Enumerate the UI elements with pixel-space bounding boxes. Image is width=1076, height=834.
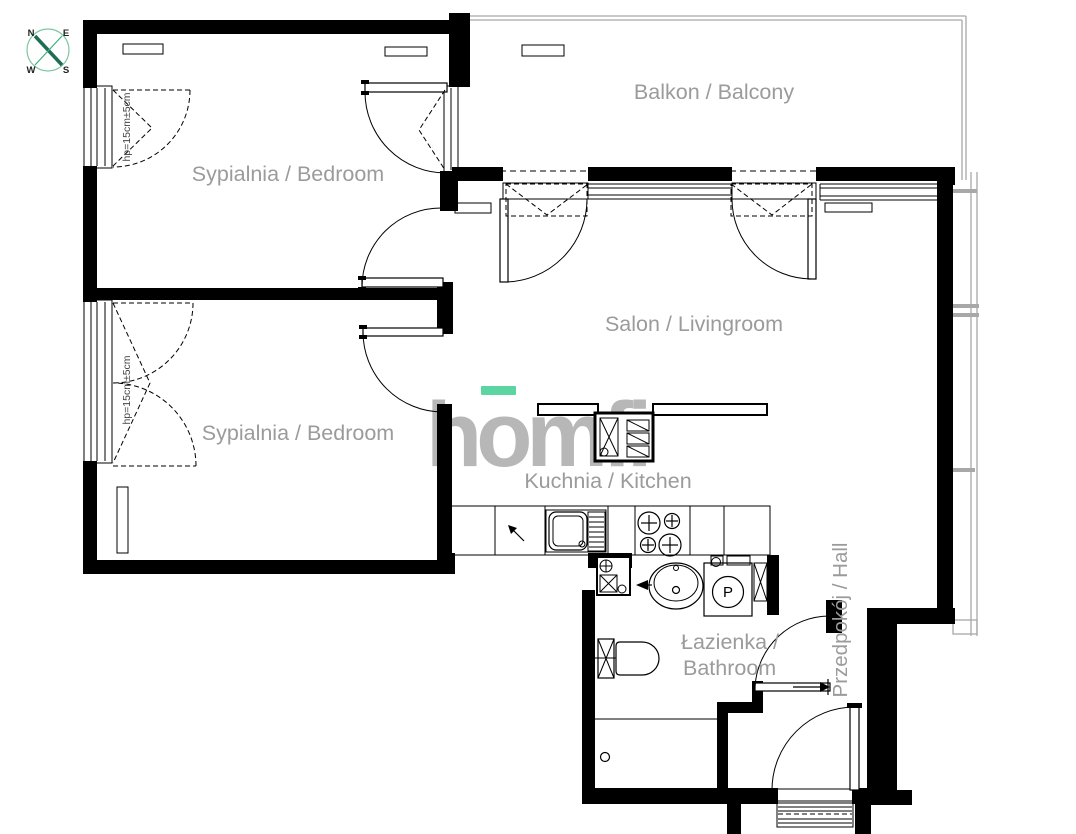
washing-machine-label: P xyxy=(723,584,733,601)
doormat xyxy=(777,803,853,827)
label-hall: Przedpokój / Hall xyxy=(829,543,852,698)
livingroom-balcony-door-1 xyxy=(500,183,588,282)
label-bedroom-1: Sypialnia / Bedroom xyxy=(192,162,384,186)
bedroom1-window: hp=15cm±5cm xyxy=(84,86,190,168)
washing-machine: P xyxy=(704,556,752,616)
compass-s: S xyxy=(63,65,69,76)
bedroom1-balcony-door xyxy=(361,80,458,173)
counter-arrow xyxy=(508,525,524,541)
livingroom-window-band-right xyxy=(820,184,937,200)
shower xyxy=(595,719,717,762)
bedroom1-door xyxy=(358,208,443,291)
label-livingroom: Salon / Livingroom xyxy=(605,312,783,336)
bathroom-shaft-box xyxy=(597,557,630,595)
livingroom-window-band xyxy=(588,184,732,199)
label-balcony: Balkon / Balcony xyxy=(634,80,794,104)
entrance-door xyxy=(772,703,862,827)
kitchen-sink xyxy=(546,510,606,552)
livingroom-balcony-door-2 xyxy=(731,183,816,279)
watermark-accent-bar xyxy=(481,386,516,395)
window-sill-annotation-1: hp=15cm±5cm xyxy=(121,92,133,161)
floor-plan-page: homfi xyxy=(0,0,1076,834)
washer-shaft xyxy=(754,563,767,601)
stove xyxy=(638,512,681,556)
label-bathroom-line2: Bathroom xyxy=(683,656,776,680)
washbasin xyxy=(649,563,703,609)
floor-plan-drawing: homfi xyxy=(0,0,1076,834)
shower-drain xyxy=(601,753,610,762)
label-kitchen: Kuchnia / Kitchen xyxy=(524,469,691,493)
compass-n: N xyxy=(28,28,35,39)
bedroom2-window: hp=15cm±5cm xyxy=(84,300,196,466)
label-bathroom-line1: Łazienka / xyxy=(681,630,779,654)
toilet xyxy=(584,639,659,678)
label-bedroom-2: Sypialnia / Bedroom xyxy=(202,421,394,445)
compass-rose-icon: N E W S xyxy=(27,28,70,76)
kitchen-fixtures xyxy=(447,506,770,556)
compass-w: W xyxy=(27,65,36,76)
window-sill-annotation-2: hp=15cm±5cm xyxy=(121,355,133,424)
compass-e: E xyxy=(63,28,69,39)
